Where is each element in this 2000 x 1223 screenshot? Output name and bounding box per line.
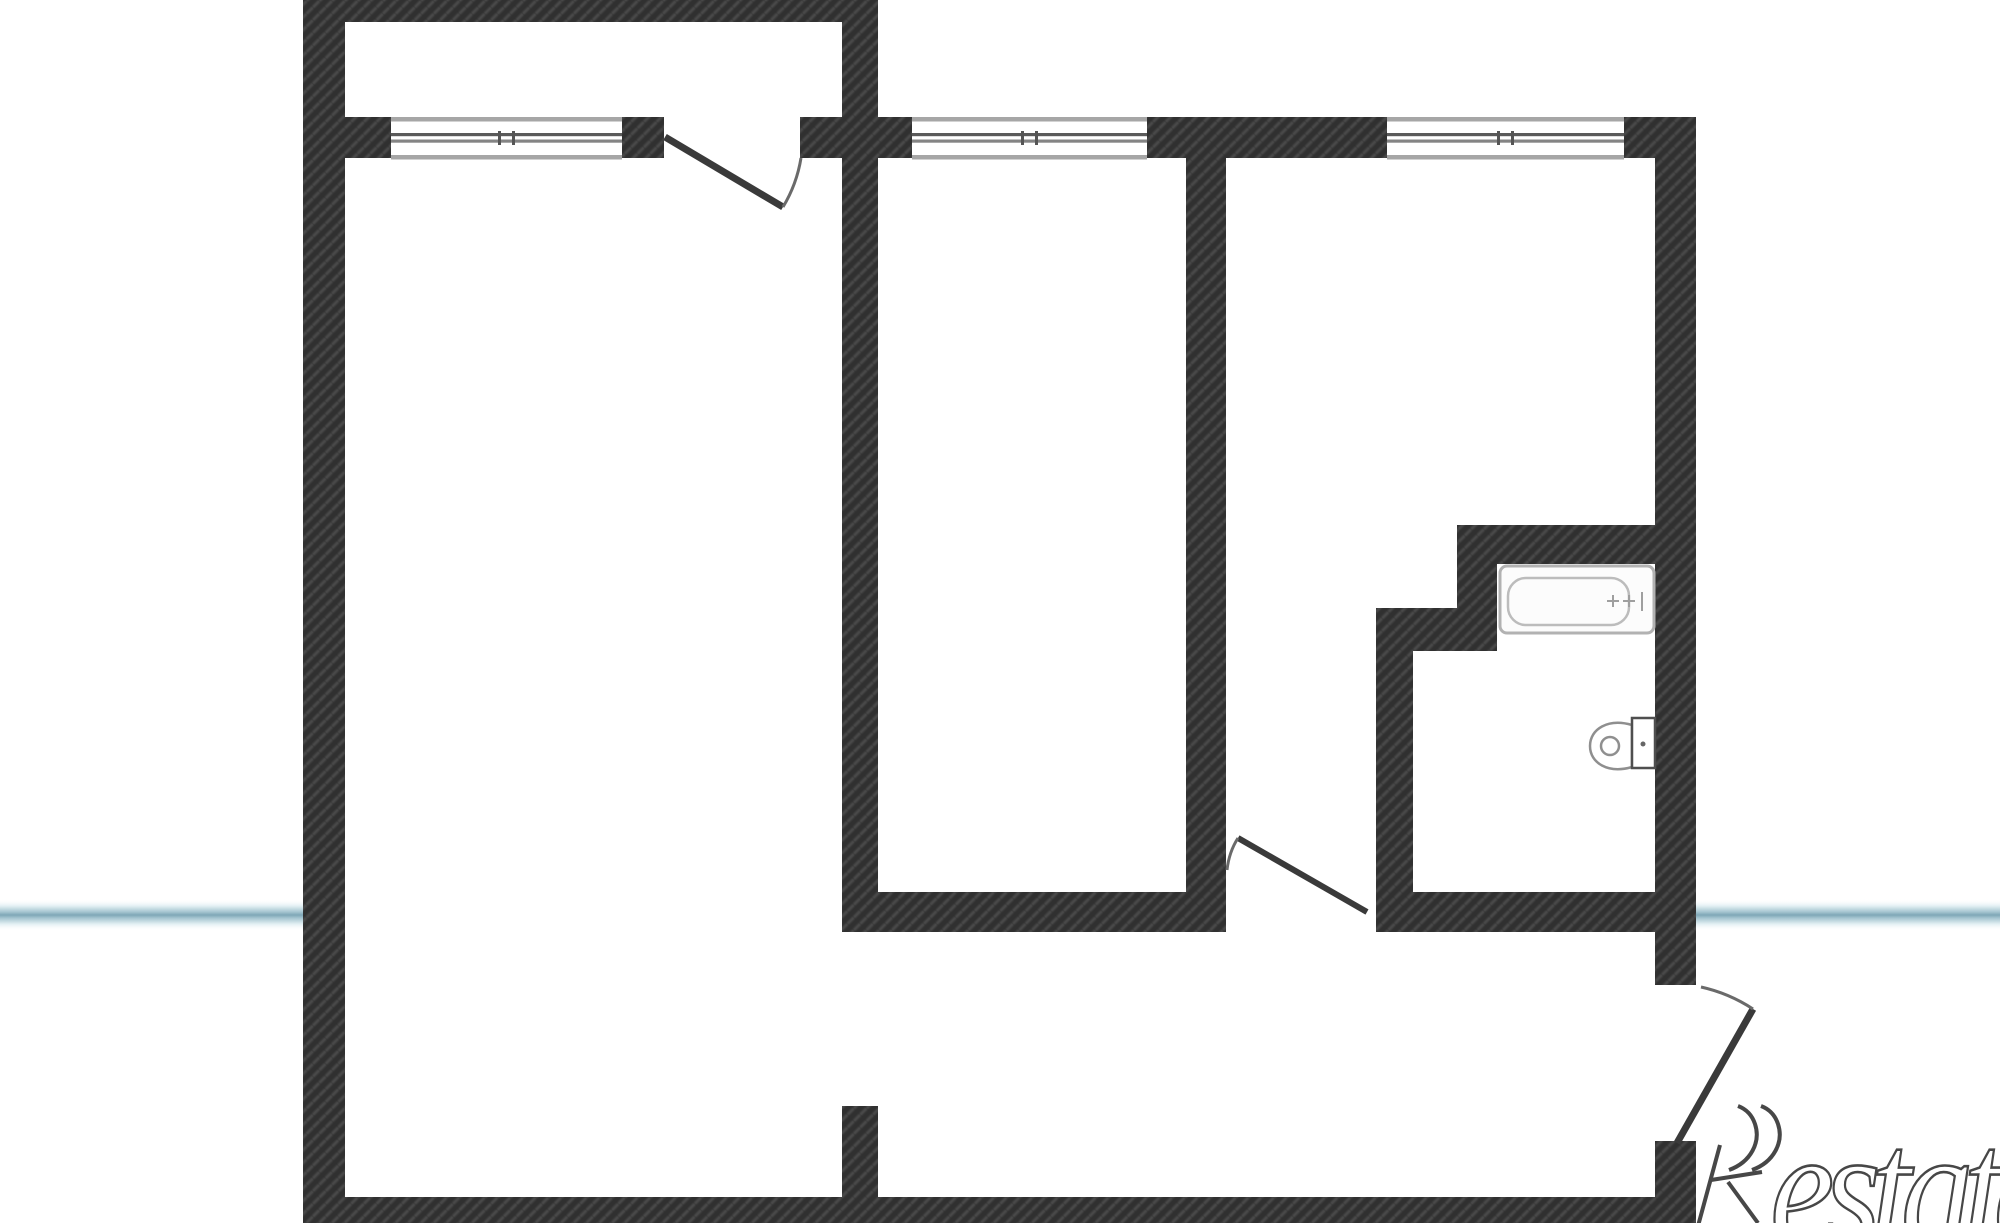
svg-text:estate: estate	[1770, 1095, 2000, 1223]
